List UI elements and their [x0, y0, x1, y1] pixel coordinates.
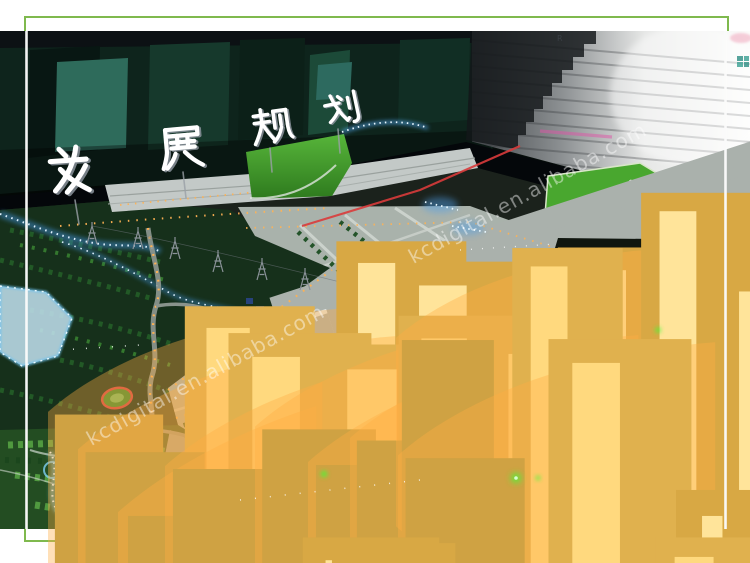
shutter-mark-label: R [557, 34, 563, 43]
product-photo-card: R [0, 0, 750, 563]
model-photo: R [0, 0, 750, 563]
